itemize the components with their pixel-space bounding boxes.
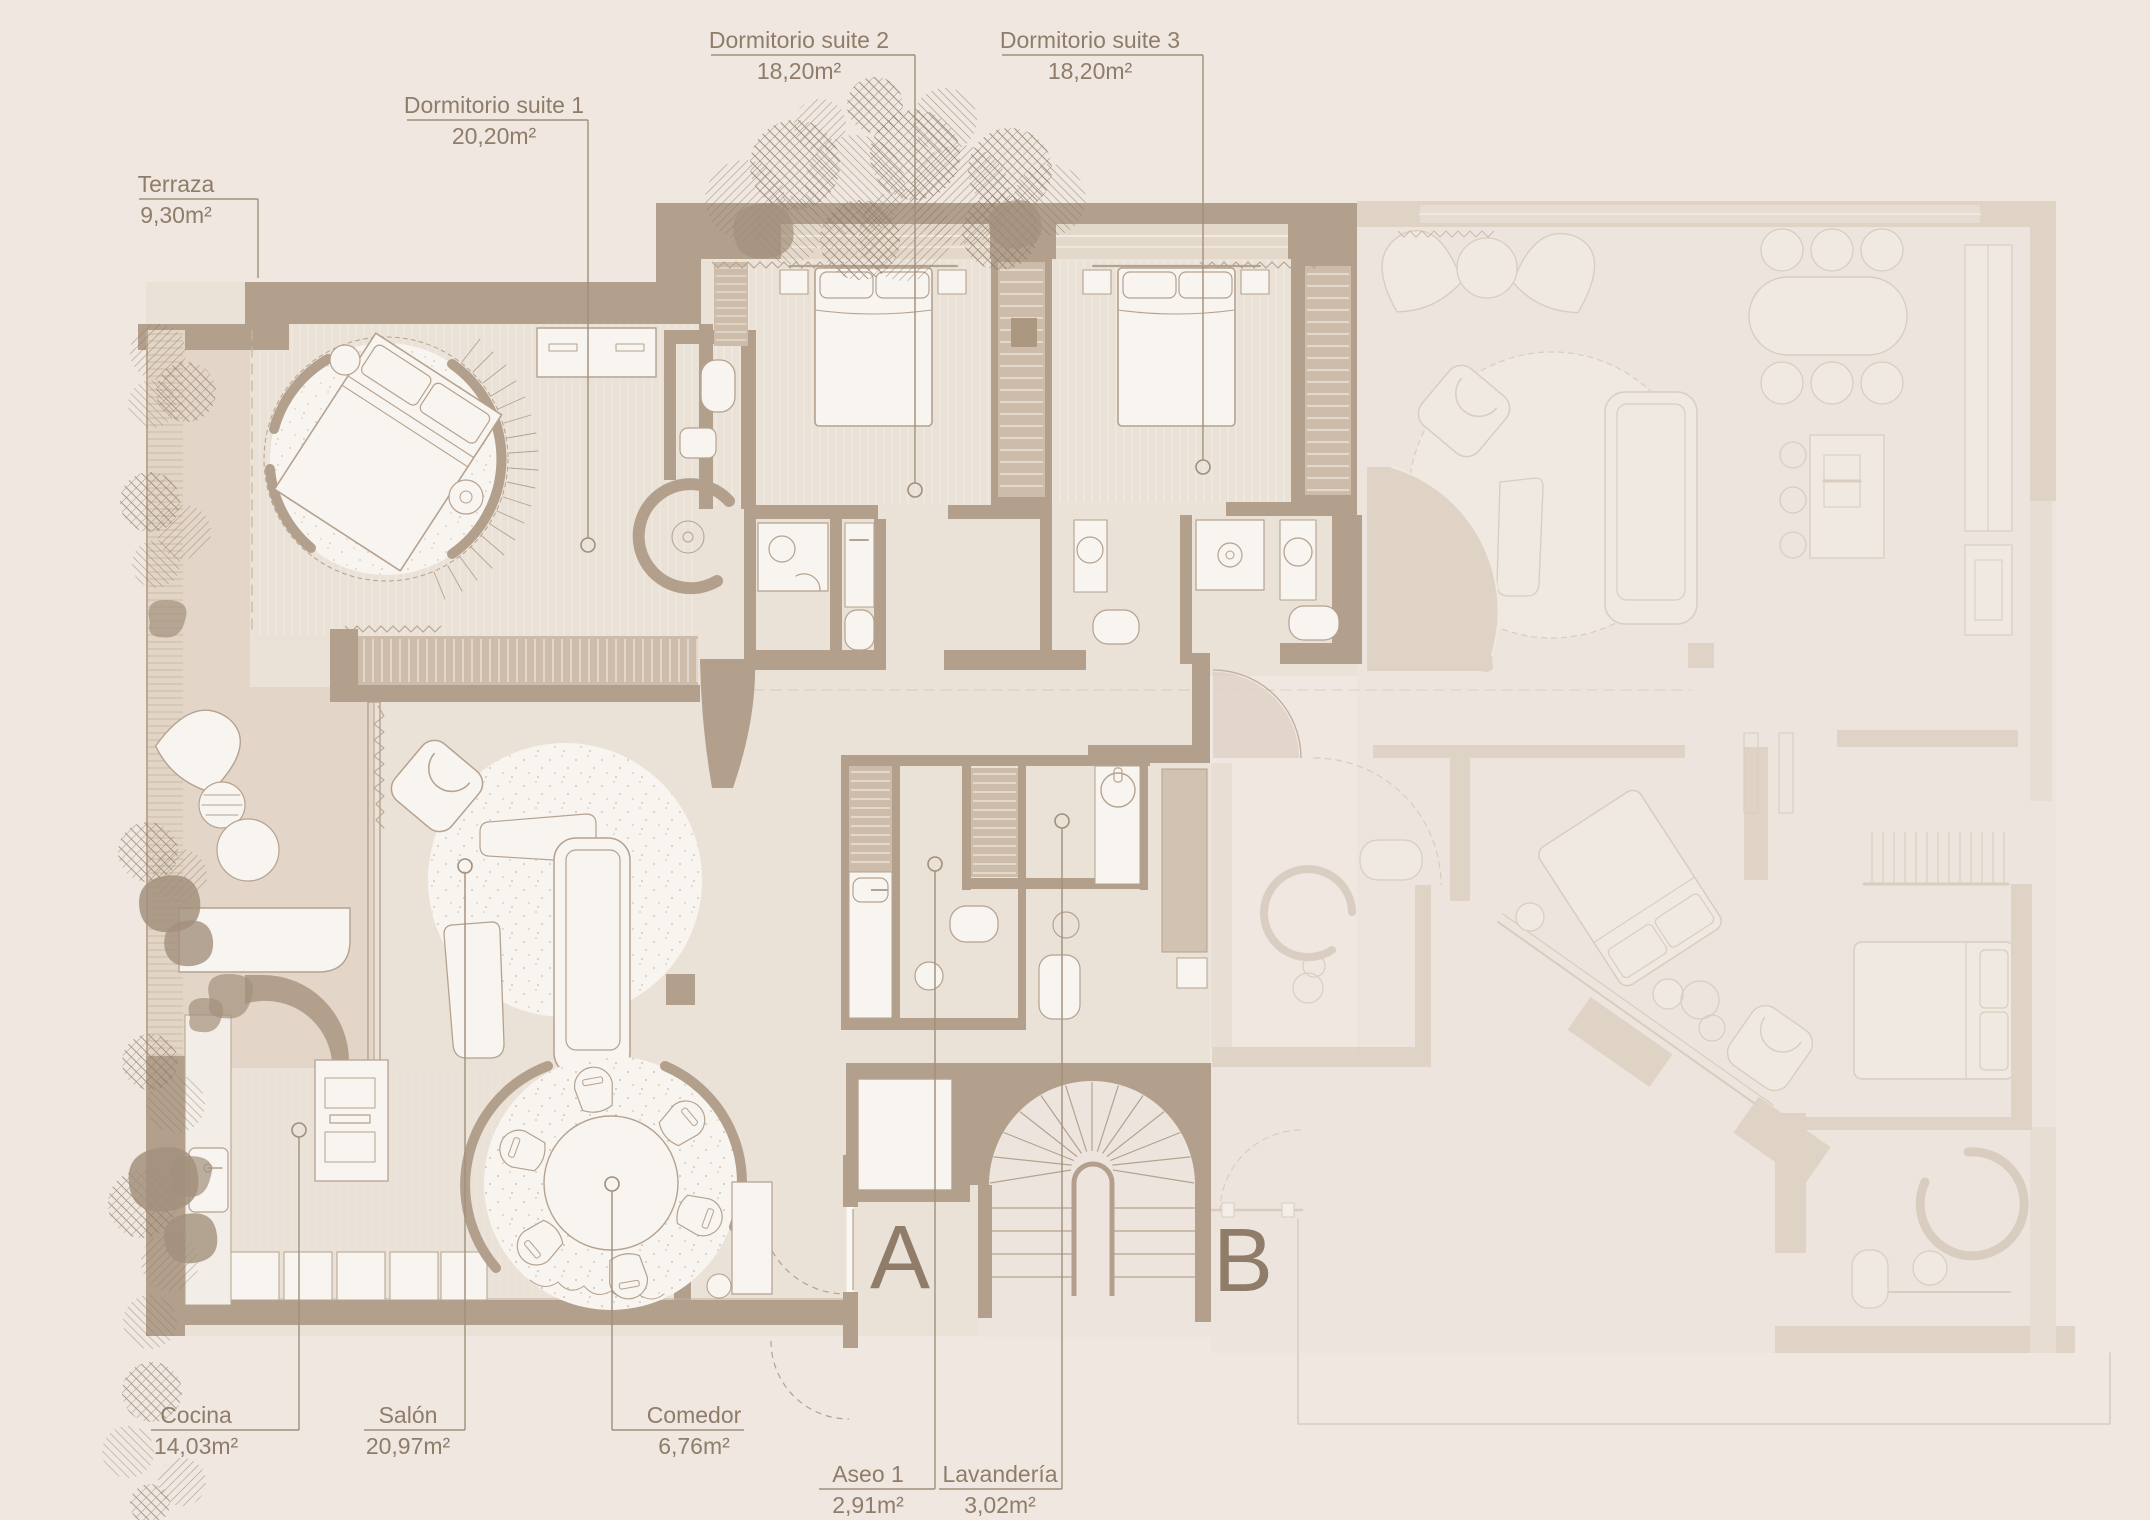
svg-text:20,20m²: 20,20m² <box>452 123 537 149</box>
svg-text:Salón: Salón <box>379 1402 438 1428</box>
svg-text:18,20m²: 18,20m² <box>1048 58 1133 84</box>
svg-text:Aseo 1: Aseo 1 <box>832 1461 904 1487</box>
svg-text:Comedor: Comedor <box>647 1402 742 1428</box>
svg-text:Lavandería: Lavandería <box>942 1461 1057 1487</box>
svg-text:2,91m²: 2,91m² <box>832 1492 904 1518</box>
svg-text:18,20m²: 18,20m² <box>757 58 842 84</box>
svg-text:3,02m²: 3,02m² <box>964 1492 1036 1518</box>
svg-text:Dormitorio suite 3: Dormitorio suite 3 <box>1000 27 1180 53</box>
svg-text:9,30m²: 9,30m² <box>140 202 212 228</box>
svg-text:14,03m²: 14,03m² <box>154 1433 239 1459</box>
svg-text:Dormitorio suite 2: Dormitorio suite 2 <box>709 27 889 53</box>
svg-text:Terraza: Terraza <box>138 171 215 197</box>
svg-text:Cocina: Cocina <box>160 1402 232 1428</box>
svg-text:A: A <box>870 1208 930 1308</box>
svg-text:Dormitorio suite 1: Dormitorio suite 1 <box>404 92 584 118</box>
svg-text:B: B <box>1213 1211 1273 1311</box>
svg-text:6,76m²: 6,76m² <box>658 1433 730 1459</box>
svg-text:20,97m²: 20,97m² <box>366 1433 451 1459</box>
